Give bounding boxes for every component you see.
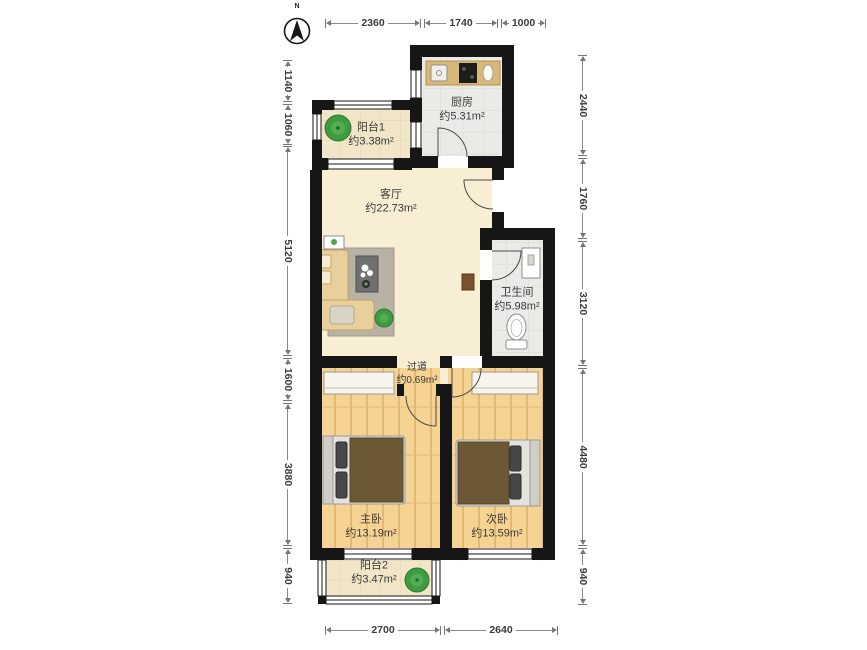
coffee-table <box>356 256 378 292</box>
room-label-kitchen: 厨房 约5.31m² <box>439 96 484 125</box>
wardrobe <box>324 372 394 394</box>
dim-left-1: 1140 <box>281 60 295 102</box>
dim-right-2: 1760 <box>576 158 590 239</box>
window <box>334 101 392 109</box>
compass: N <box>283 3 311 11</box>
window <box>326 596 432 604</box>
room-label-balcony2: 阳台2 约3.47m² <box>351 559 396 588</box>
window <box>468 549 532 559</box>
dim-right-1: 2440 <box>576 55 590 156</box>
master-furniture <box>323 372 405 504</box>
plant-icon <box>405 568 429 592</box>
window <box>432 560 440 596</box>
window <box>313 114 321 140</box>
second-bed <box>456 440 540 506</box>
compass-icon <box>285 19 310 44</box>
window <box>344 549 412 559</box>
toilet-icon <box>506 314 527 349</box>
dim-left-2: 1060 <box>281 104 295 144</box>
kitchen-counter <box>426 61 500 85</box>
room-label-master: 主卧 约13.19m² <box>345 513 396 542</box>
room-label-second: 次卧 约13.59m² <box>471 513 522 542</box>
dim-left-4: 1600 <box>281 358 295 401</box>
sink-icon <box>431 65 447 81</box>
floorplan-drawing <box>0 0 867 650</box>
room-label-living: 客厅 约22.73m² <box>365 188 416 217</box>
dim-right-3: 3120 <box>576 241 590 366</box>
cabinet <box>462 274 474 290</box>
dim-bottom-1: 2700 <box>325 623 441 637</box>
plant-icon <box>325 115 351 141</box>
dim-right-4: 4480 <box>576 368 590 546</box>
window <box>318 560 326 596</box>
dim-left-3: 5120 <box>281 146 295 356</box>
dim-top-2: 1740 <box>424 16 498 30</box>
basin-icon <box>483 65 493 81</box>
dim-top-3: 1000 <box>501 16 546 30</box>
window <box>328 159 394 169</box>
room-label-hallway: 过道 约0.69m² <box>396 361 437 387</box>
room-label-balcony1: 阳台1 约3.38m² <box>348 121 393 150</box>
floorplan-canvas: N 2360 1740 1000 2700 2640 1140 1060 512… <box>0 0 867 650</box>
stove-icon <box>459 63 477 83</box>
dim-left-6: 940 <box>281 548 295 604</box>
dim-bottom-2: 2640 <box>444 623 558 637</box>
window <box>411 70 421 98</box>
master-bed <box>323 436 405 504</box>
dim-top-1: 2360 <box>325 16 421 30</box>
room-label-bathroom: 卫生间 约5.98m² <box>494 286 539 315</box>
dim-right-5: 940 <box>576 548 590 605</box>
window <box>411 122 421 148</box>
compass-north-label: N <box>283 3 311 11</box>
dim-left-5: 3880 <box>281 403 295 546</box>
wardrobe <box>472 372 538 394</box>
